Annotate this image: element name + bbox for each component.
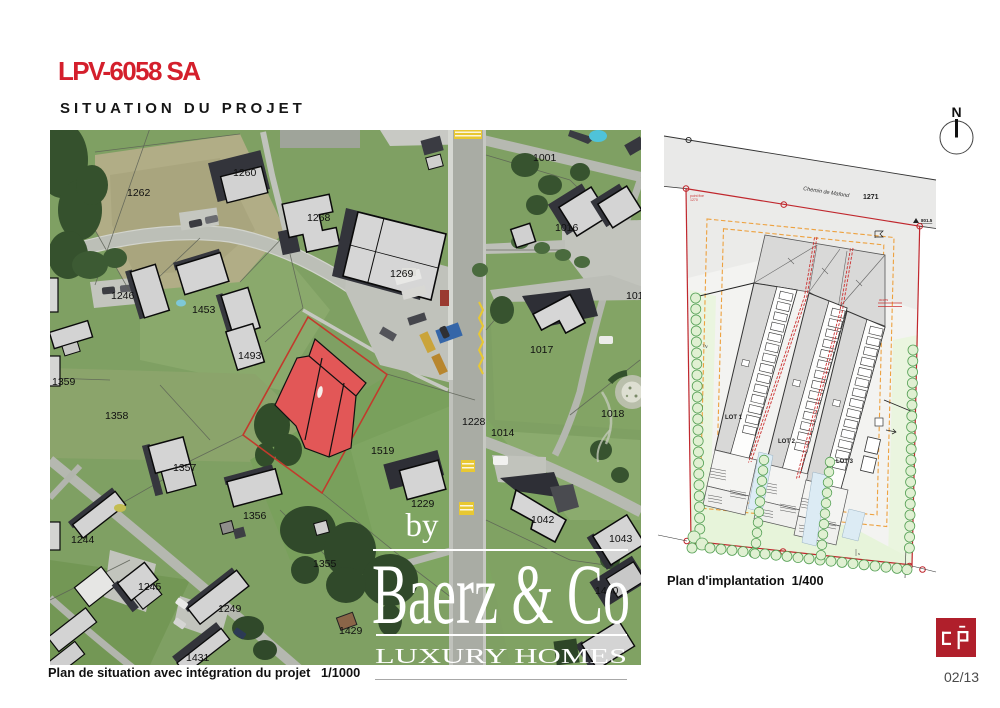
svg-text:1355: 1355 xyxy=(313,558,337,570)
svg-text:1244: 1244 xyxy=(71,534,95,546)
svg-text:LOT 1: LOT 1 xyxy=(725,415,743,421)
svg-text:1016: 1016 xyxy=(555,222,579,234)
svg-text:801.5: 801.5 xyxy=(921,218,933,223)
svg-text:1357: 1357 xyxy=(173,462,197,474)
svg-text:1268: 1268 xyxy=(307,212,331,224)
svg-text:1042: 1042 xyxy=(531,514,555,526)
svg-text:LOT 3: LOT 3 xyxy=(836,459,854,465)
svg-text:1018: 1018 xyxy=(601,408,625,420)
svg-text:1270: 1270 xyxy=(690,198,698,202)
svg-text:1262: 1262 xyxy=(127,187,151,199)
svg-text:acces: acces xyxy=(879,298,888,302)
svg-text:1014: 1014 xyxy=(491,427,515,439)
svg-text:1493: 1493 xyxy=(238,350,262,362)
svg-text:1453: 1453 xyxy=(192,304,216,316)
svg-text:1429: 1429 xyxy=(339,625,363,637)
svg-text:1359: 1359 xyxy=(52,376,76,388)
svg-text:1260: 1260 xyxy=(233,167,257,179)
svg-text:1246: 1246 xyxy=(111,290,135,302)
svg-text:1249: 1249 xyxy=(218,603,242,615)
svg-text:1245: 1245 xyxy=(138,581,162,593)
svg-text:1271: 1271 xyxy=(863,194,879,201)
svg-text:1043: 1043 xyxy=(609,533,633,545)
svg-text:1431: 1431 xyxy=(186,652,210,664)
svg-text:s: s xyxy=(858,551,860,556)
svg-text:LOT 2: LOT 2 xyxy=(778,439,796,445)
svg-text:Baerz & Co: Baerz & Co xyxy=(372,552,630,632)
svg-text:1017: 1017 xyxy=(530,344,554,356)
svg-text:N: N xyxy=(951,104,961,120)
svg-text:LUXURY HOMES: LUXURY HOMES xyxy=(375,644,627,668)
svg-text:1519: 1519 xyxy=(371,445,395,457)
svg-text:1356: 1356 xyxy=(243,510,267,522)
svg-text:101: 101 xyxy=(626,290,641,302)
svg-text:1269: 1269 xyxy=(390,268,414,280)
svg-text:1001: 1001 xyxy=(533,152,557,164)
svg-text:1358: 1358 xyxy=(105,410,129,422)
svg-text:1228: 1228 xyxy=(462,416,486,428)
